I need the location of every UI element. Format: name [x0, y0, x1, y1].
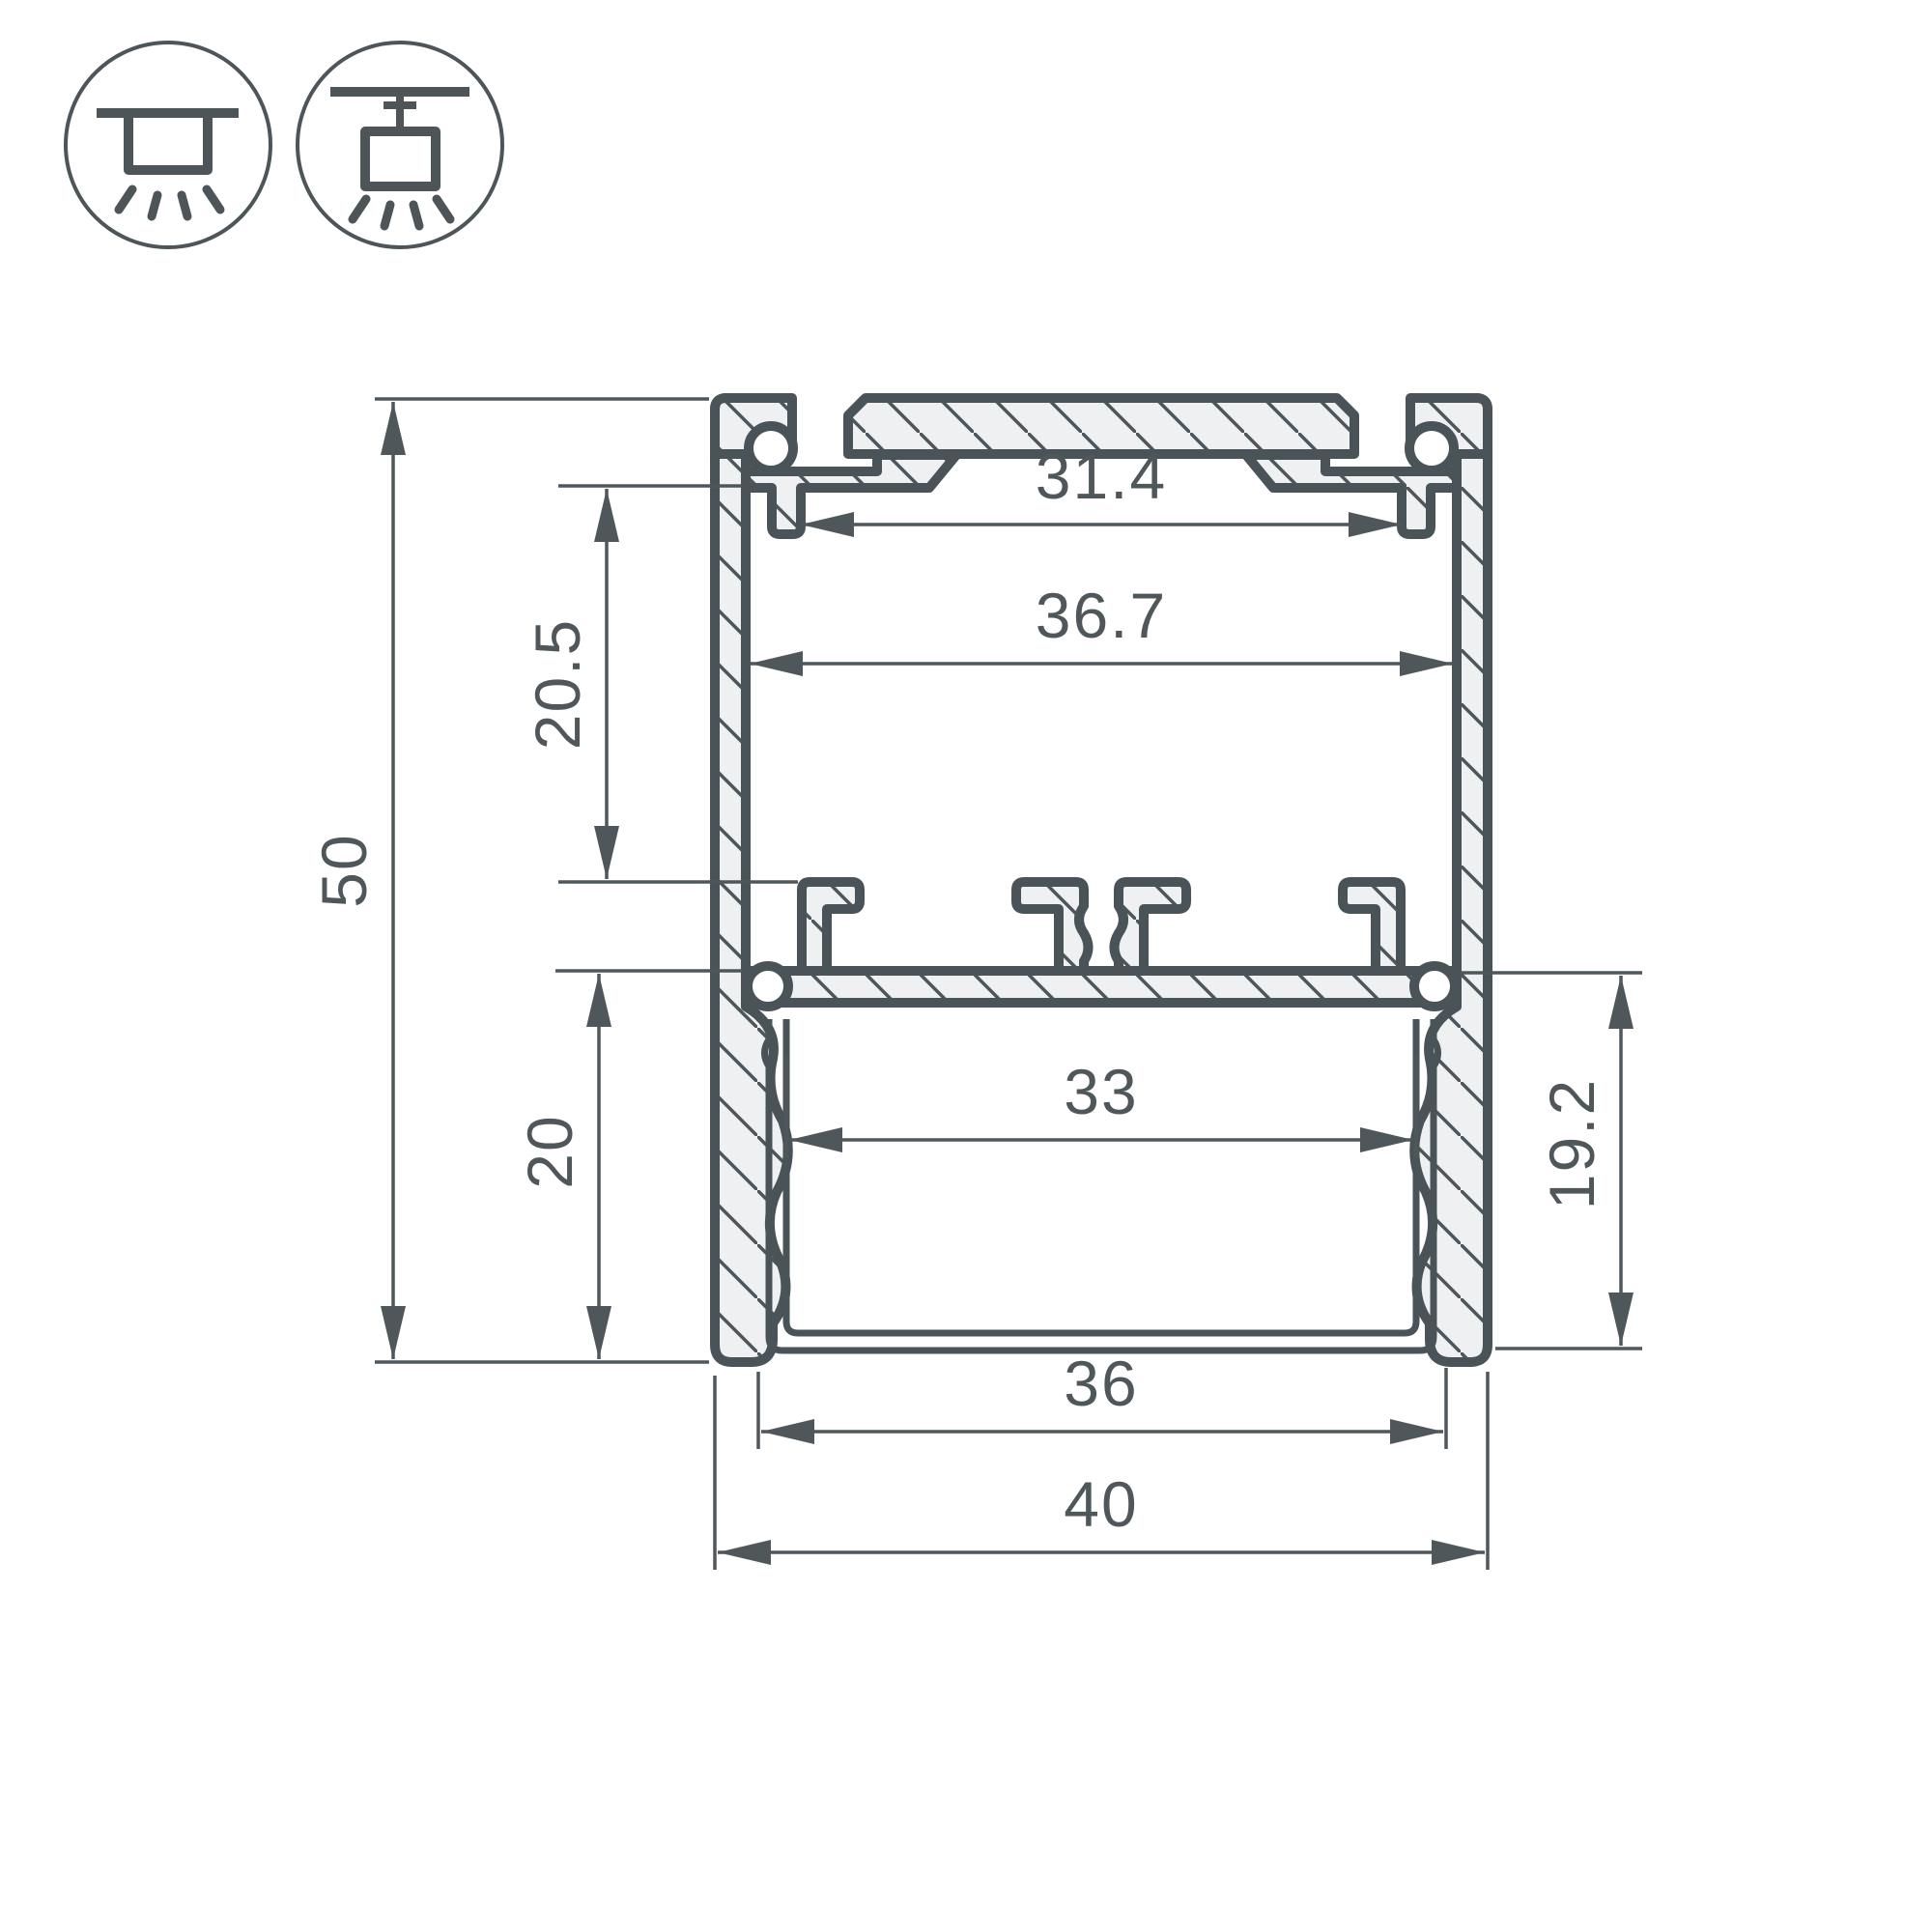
- screw-port-mid-left: [748, 966, 788, 1007]
- dim-label-19-2: 19.2: [1536, 1078, 1607, 1209]
- dim-bottom-opening-width: 36: [758, 1348, 1446, 1449]
- screw-port-mid-right: [1414, 966, 1455, 1007]
- led-plate: [746, 971, 1457, 1003]
- light-rays: [119, 189, 220, 216]
- dim-label-50: 50: [308, 833, 380, 907]
- dim-lower-cavity-height: 20: [514, 971, 742, 1359]
- profile-body: [715, 398, 1488, 1362]
- icon-circle: [298, 43, 502, 247]
- pcb-hook-right: [1343, 882, 1401, 971]
- icon-circle: [66, 43, 270, 247]
- dim-upper-cavity-height: 20.5: [522, 486, 798, 882]
- screw-fin-left: [1016, 882, 1089, 971]
- screw-port-top-left: [749, 426, 793, 470]
- dim-inner-width: 36.7: [750, 580, 1453, 676]
- right-wall: [1414, 398, 1488, 1362]
- dim-pcb-shelf-width: 33: [786, 1055, 1416, 1157]
- surface-mount-icon: [66, 43, 270, 247]
- light-rays: [353, 199, 450, 226]
- dim-label-20: 20: [514, 1114, 585, 1188]
- dim-label-36-7: 36.7: [1036, 580, 1167, 651]
- pendant-mount-icon: [298, 43, 502, 247]
- screw-fin-right: [1115, 882, 1187, 971]
- luminaire-box: [365, 131, 436, 186]
- screw-port-top-right: [1409, 426, 1454, 470]
- dim-label-40: 40: [1064, 1468, 1138, 1540]
- pcb-hook-left: [802, 882, 860, 971]
- dim-label-20-5: 20.5: [522, 618, 593, 750]
- technical-drawing-page: 31.4 36.7 20.5 50: [0, 0, 1932, 1932]
- led-profile-drawing: 31.4 36.7 20.5 50: [0, 0, 1932, 1932]
- dim-label-33: 33: [1064, 1056, 1138, 1127]
- luminaire-box: [128, 113, 208, 170]
- mount-icons: [66, 43, 502, 247]
- left-wall: [715, 398, 788, 1362]
- dim-label-31-4: 31.4: [1036, 440, 1167, 512]
- dim-label-36: 36: [1064, 1348, 1138, 1419]
